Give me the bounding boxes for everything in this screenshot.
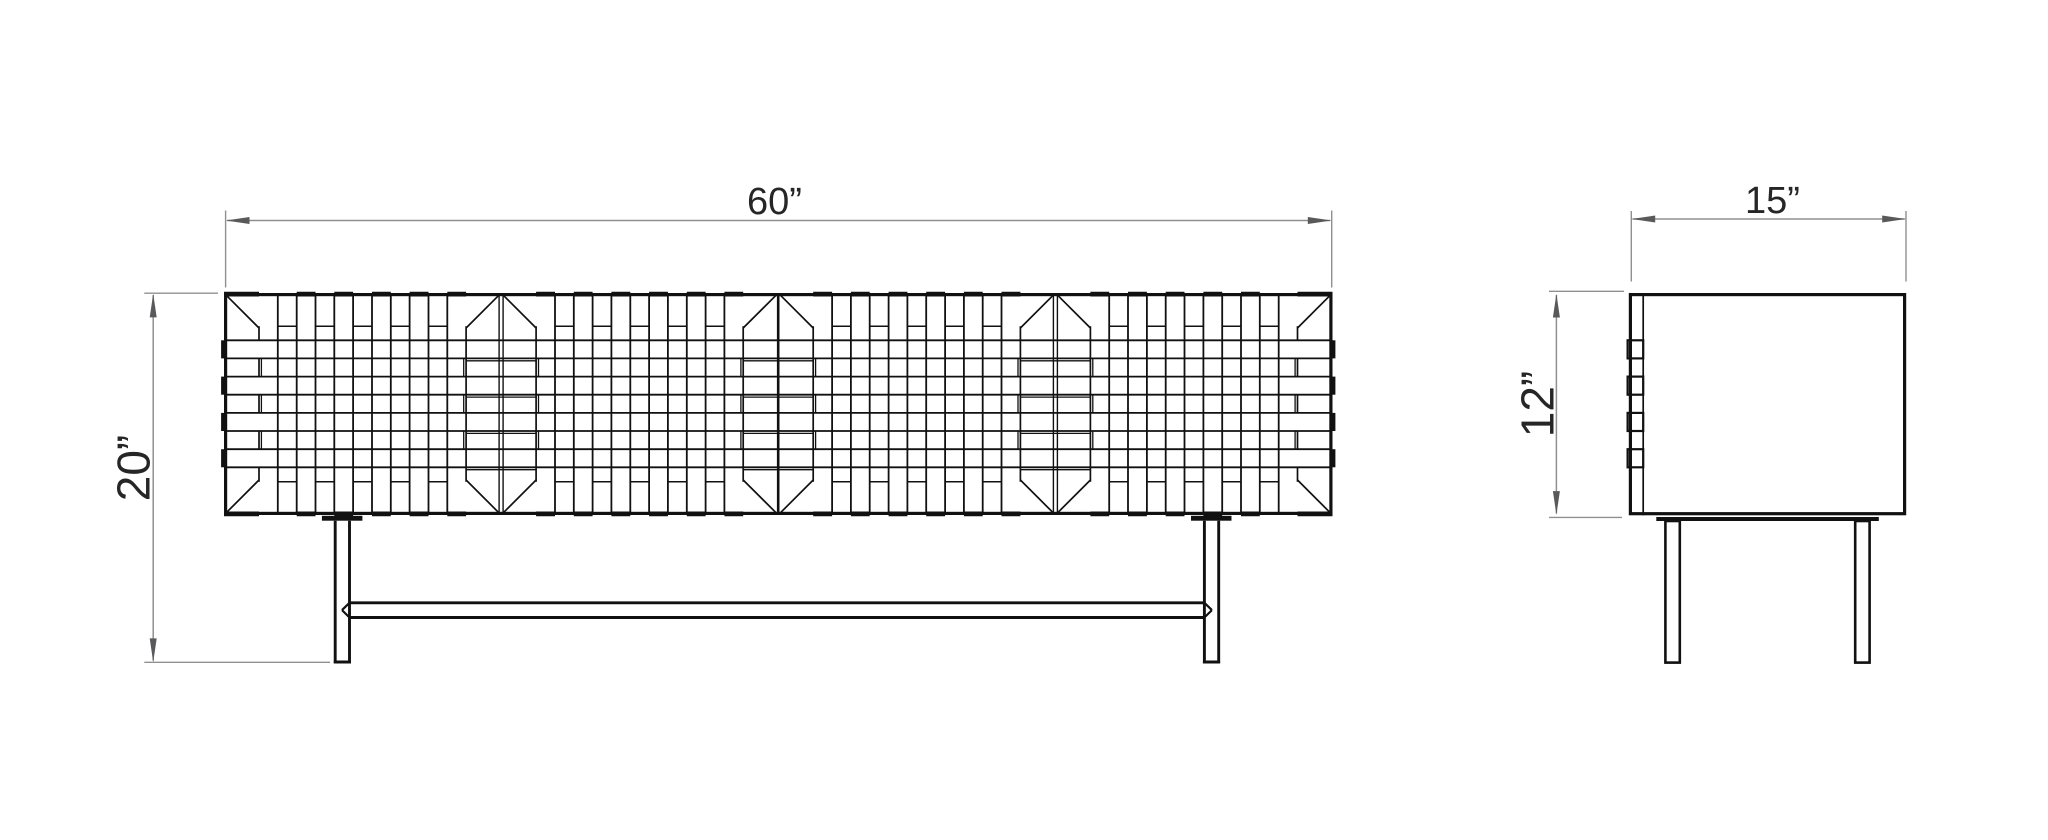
svg-text:12”: 12” <box>1512 371 1564 437</box>
svg-text:60”: 60” <box>747 181 802 223</box>
svg-text:20”: 20” <box>108 435 160 501</box>
svg-text:15”: 15” <box>1745 180 1800 222</box>
